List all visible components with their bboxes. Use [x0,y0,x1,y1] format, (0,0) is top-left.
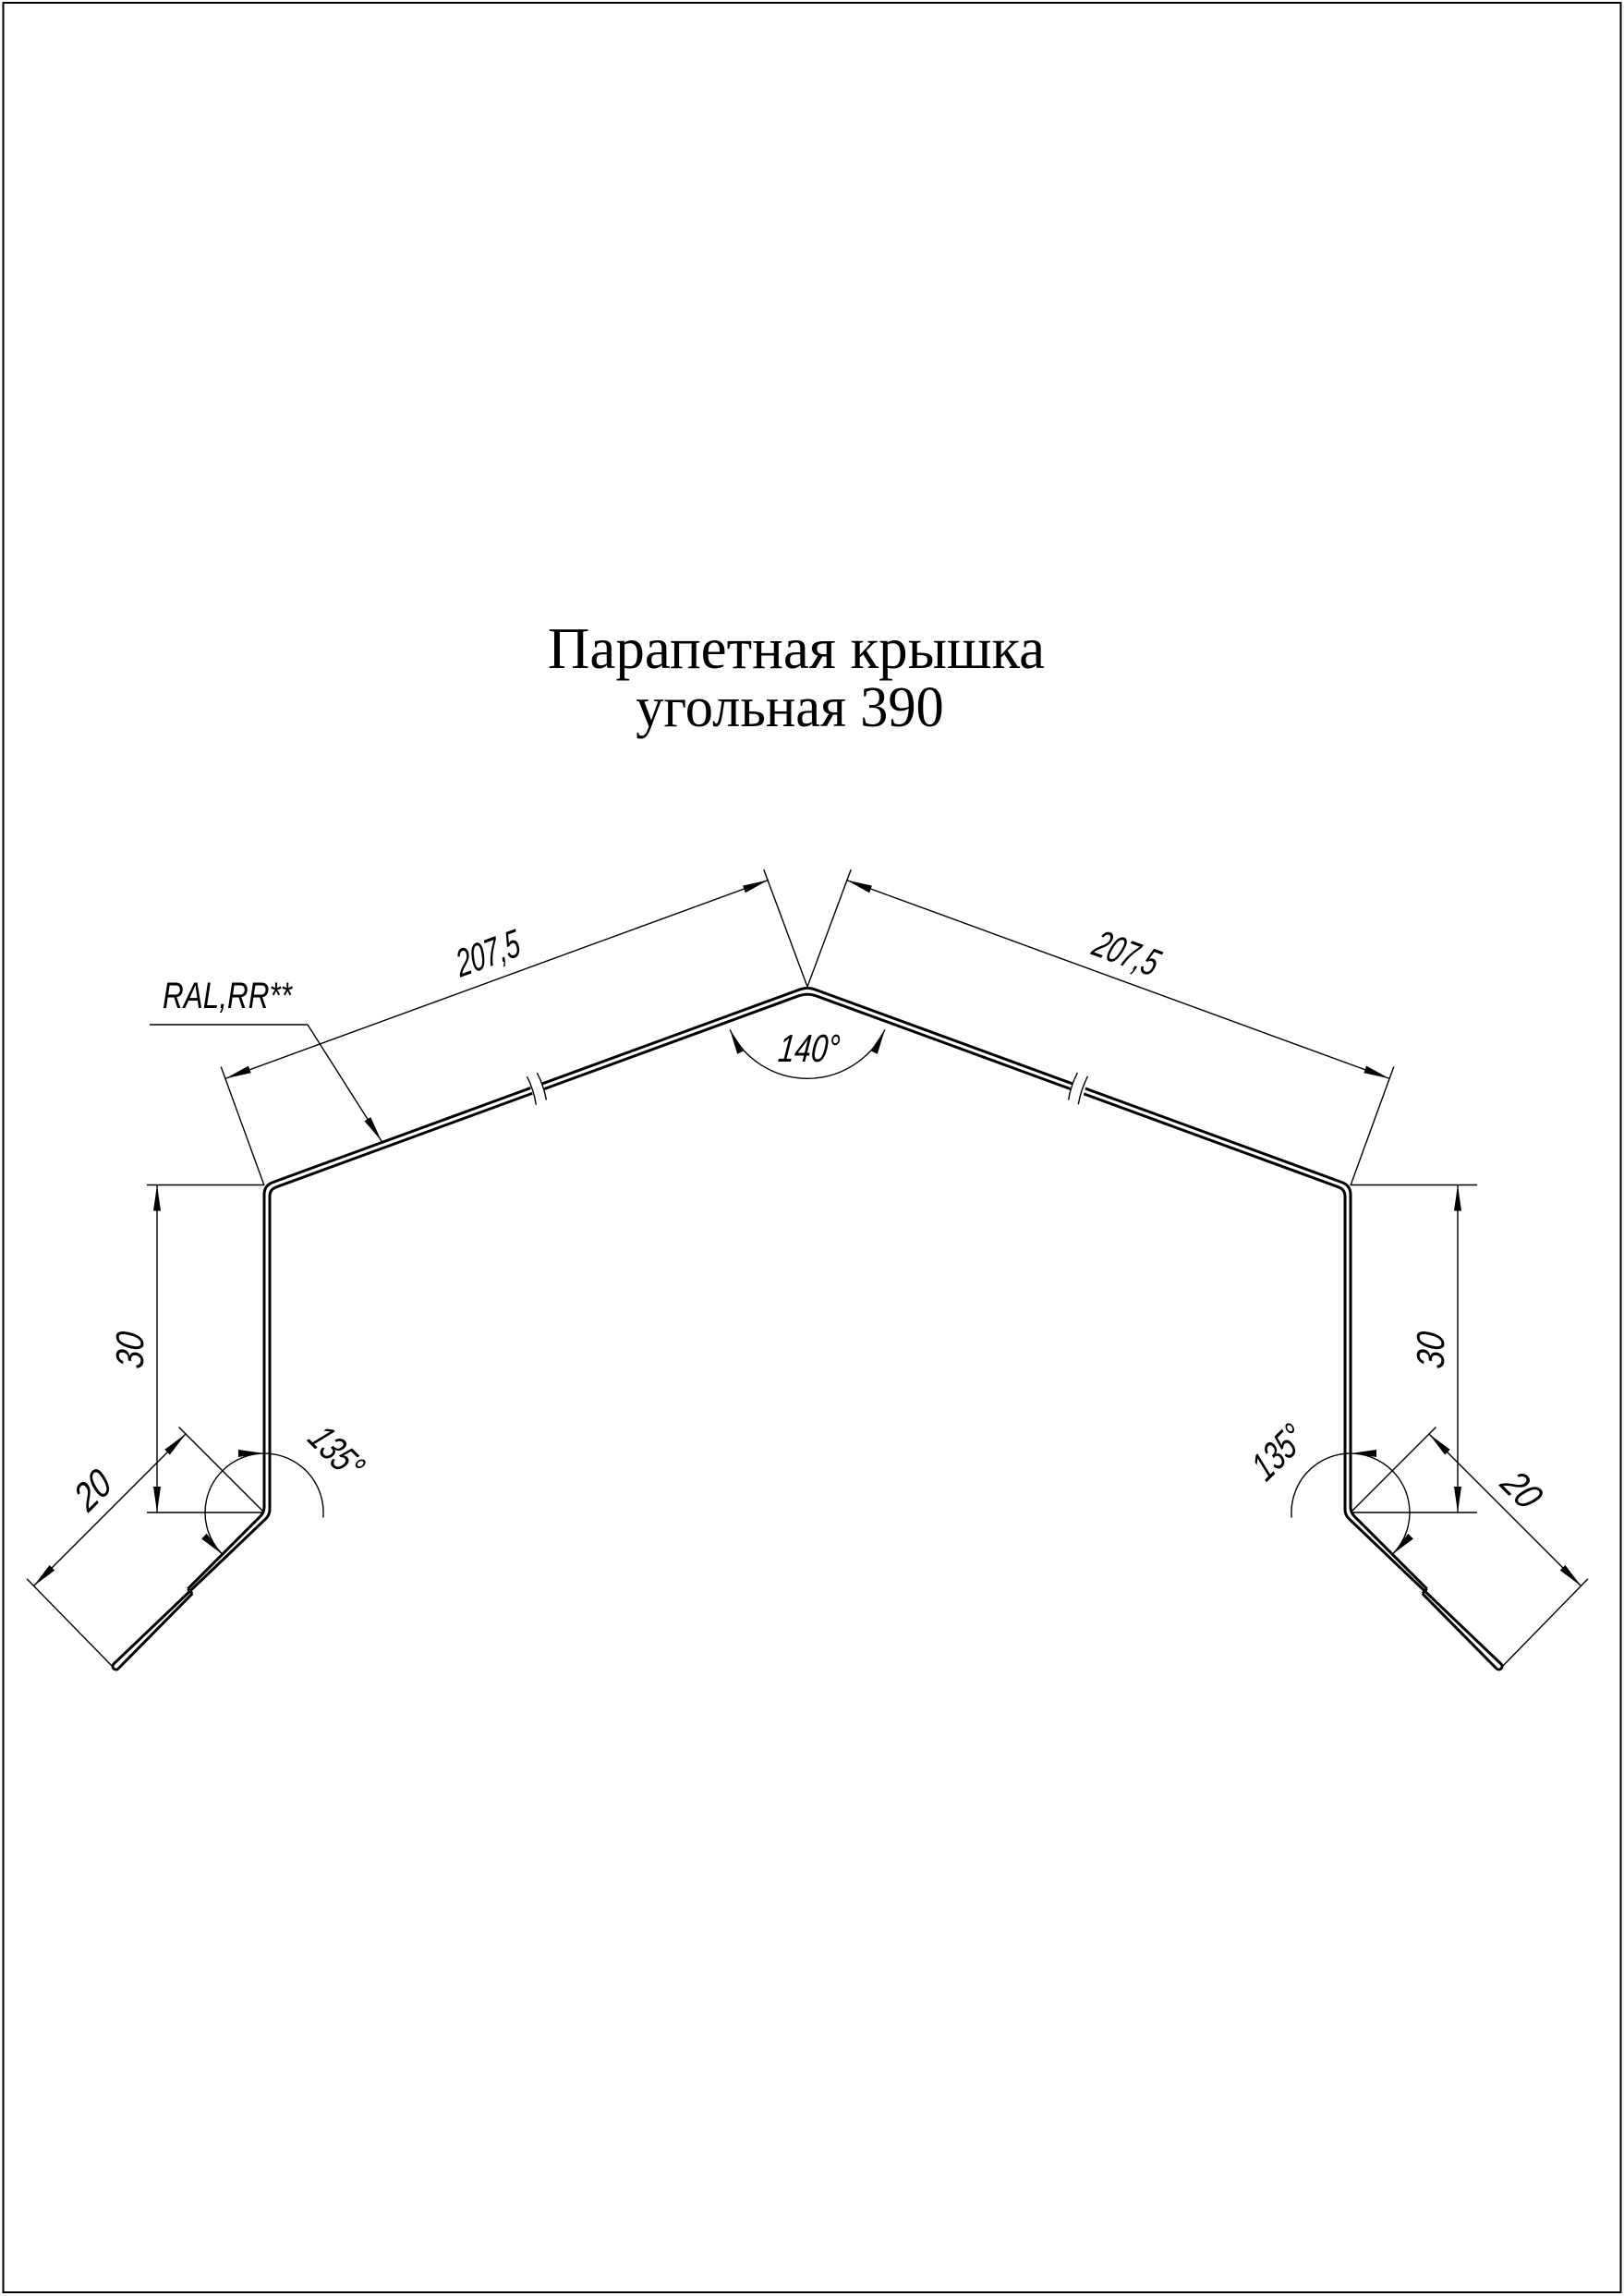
svg-text:30: 30 [109,1330,151,1371]
svg-text:угольная 390: угольная 390 [636,675,944,739]
svg-text:RAL,RR**: RAL,RR** [163,976,293,1016]
svg-text:30: 30 [1410,1330,1452,1371]
svg-text:Парапетная крышка: Парапетная крышка [548,616,1045,681]
svg-text:140°: 140° [776,1027,842,1070]
